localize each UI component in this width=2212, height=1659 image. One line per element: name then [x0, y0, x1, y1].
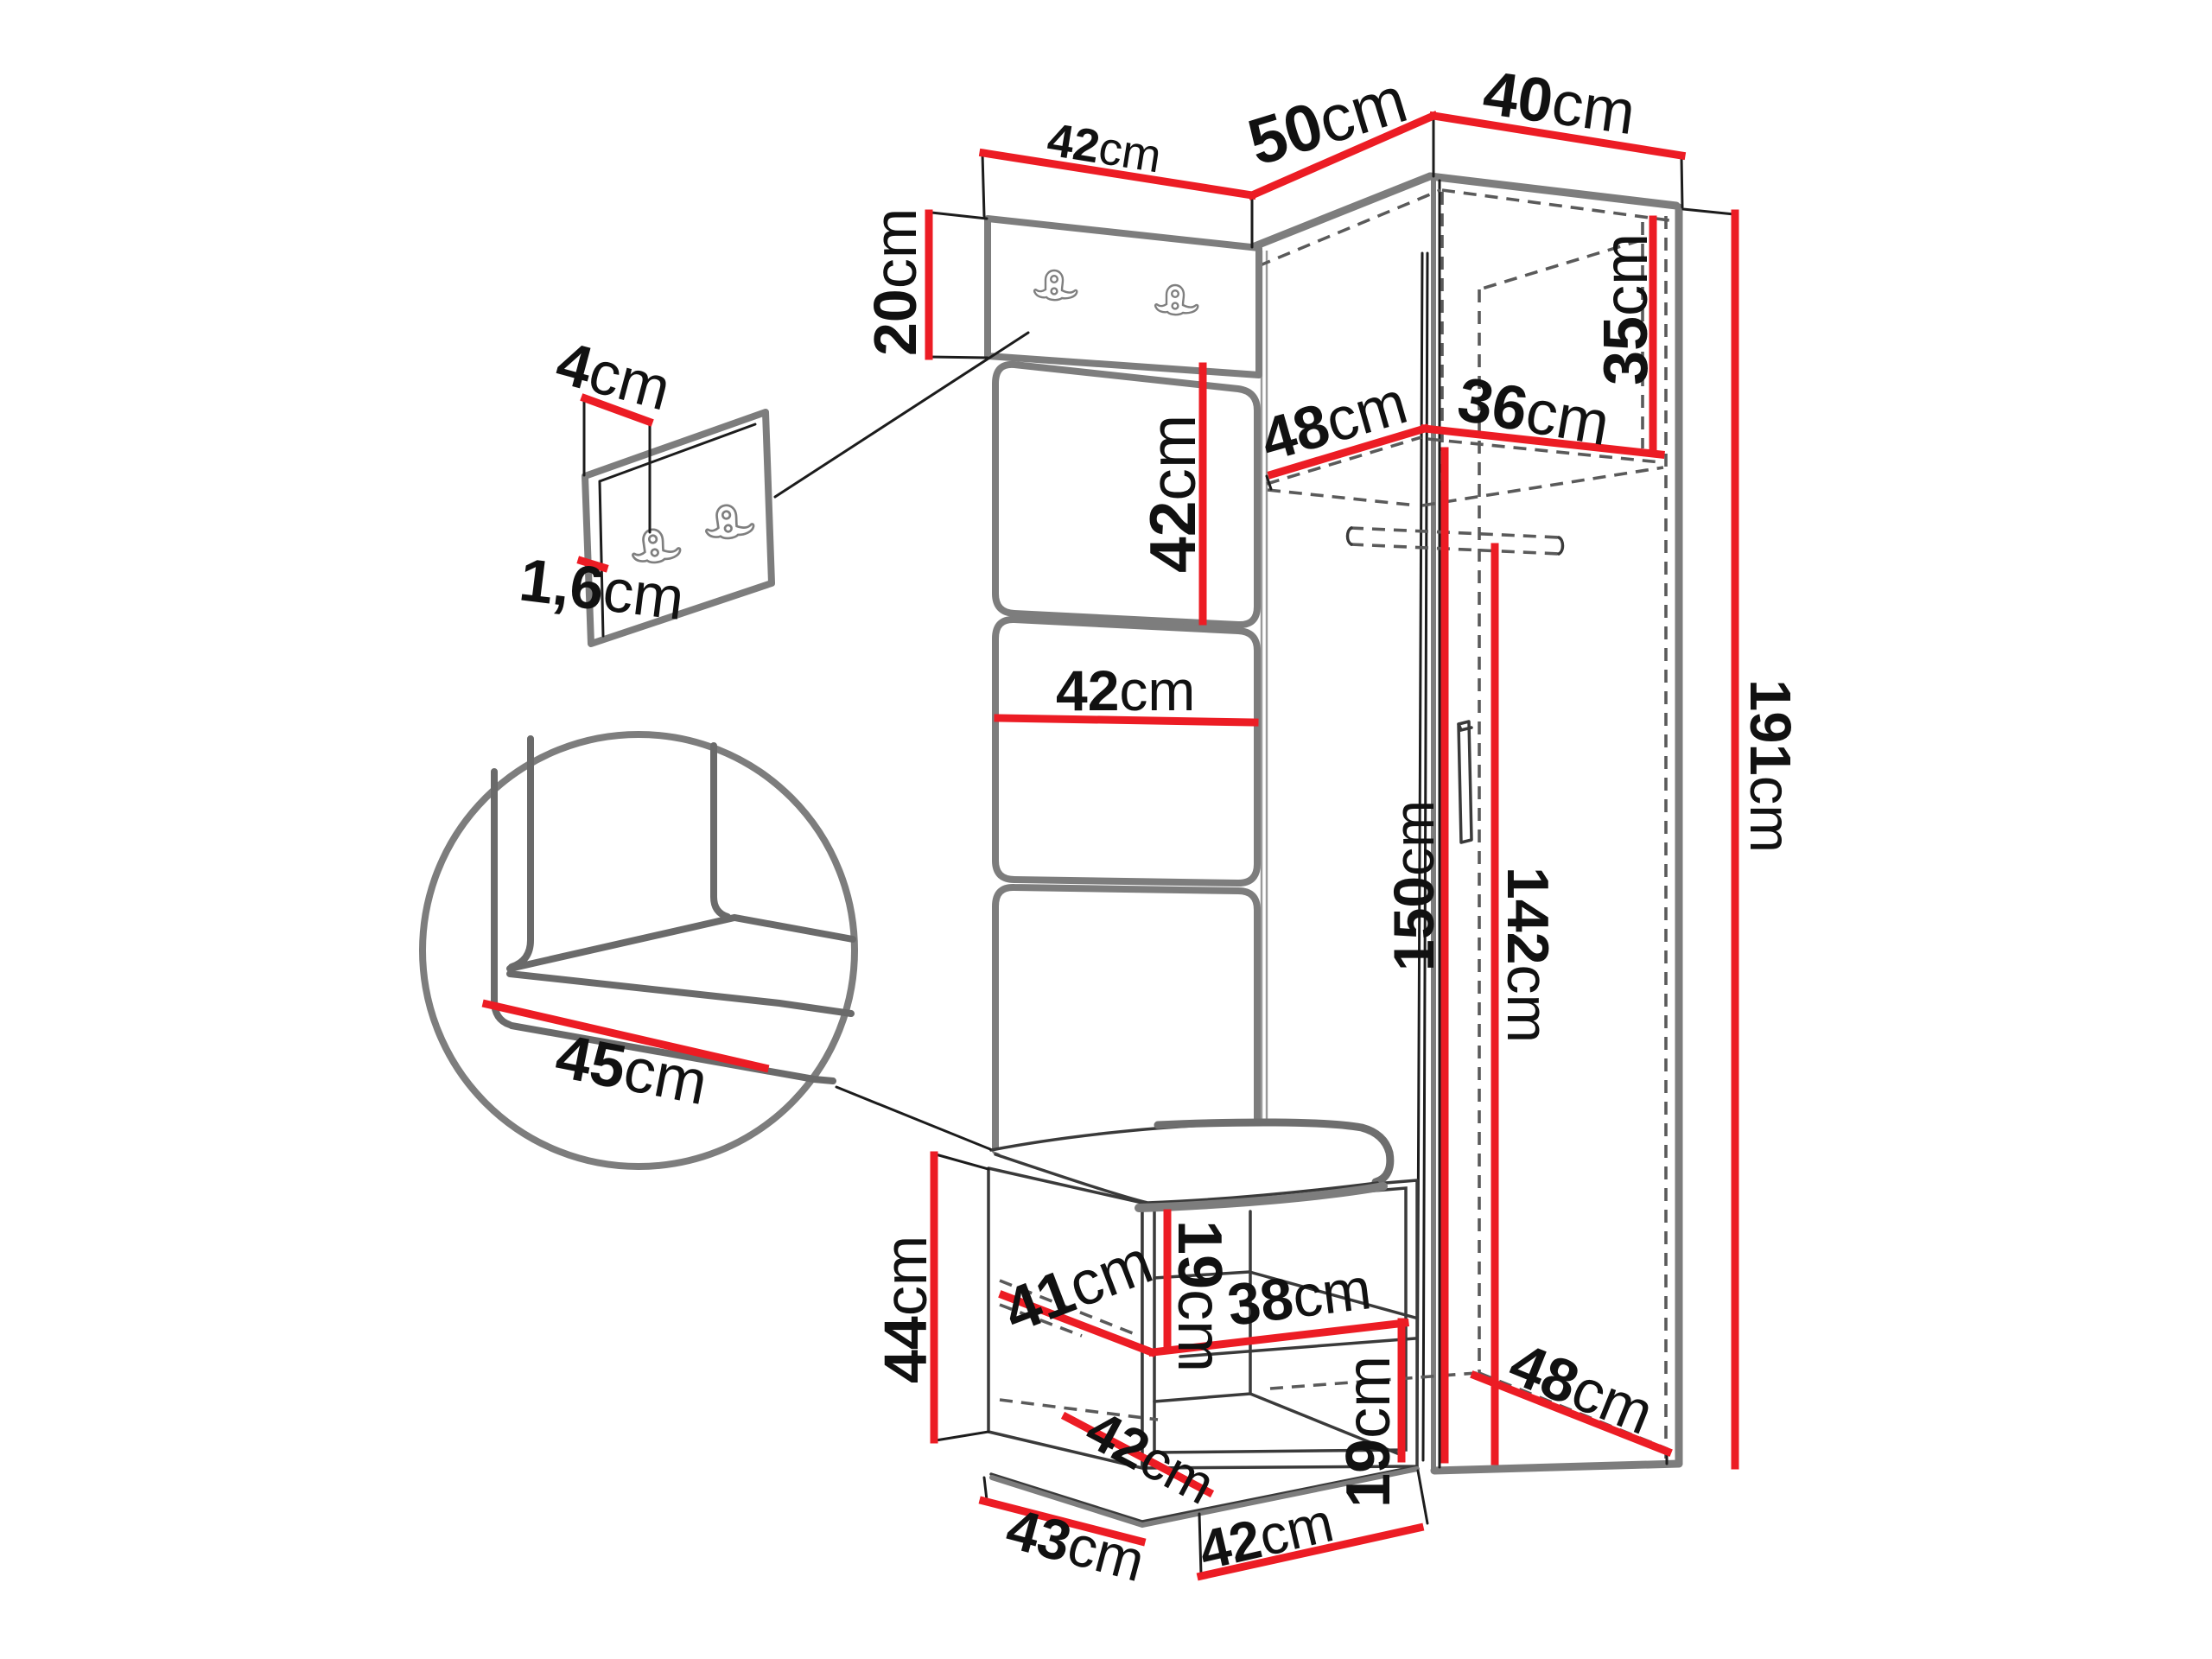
svg-text:191cm: 191cm [1738, 679, 1802, 853]
svg-text:42cm: 42cm [1136, 415, 1209, 573]
svg-text:142cm: 142cm [1495, 867, 1560, 1043]
svg-text:150cm: 150cm [1382, 800, 1446, 971]
svg-text:42cm: 42cm [1056, 658, 1195, 722]
svg-text:20cm: 20cm [861, 208, 929, 356]
svg-text:19cm: 19cm [1334, 1356, 1403, 1508]
svg-text:35cm: 35cm [1592, 233, 1661, 385]
svg-text:19cm: 19cm [1165, 1220, 1234, 1372]
svg-text:44cm: 44cm [872, 1236, 939, 1383]
